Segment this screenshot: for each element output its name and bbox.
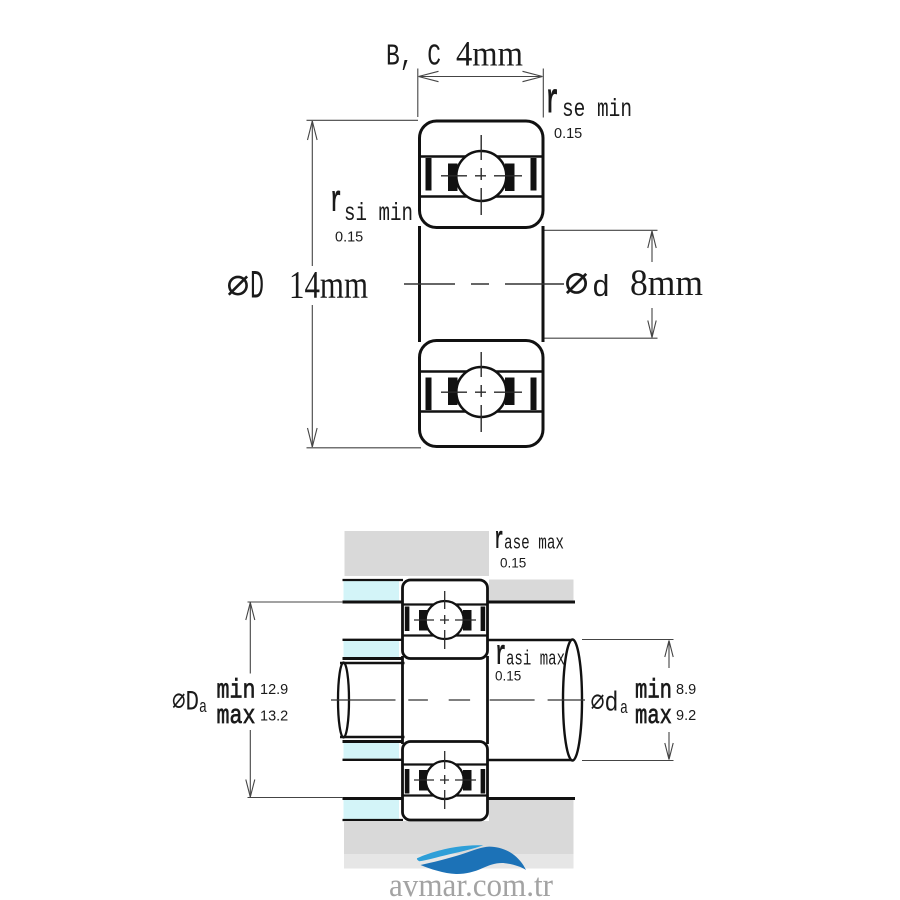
svg-text:ase max: ase max (504, 533, 564, 556)
svg-text:9.2: 9.2 (676, 708, 696, 724)
svg-text:0.15: 0.15 (495, 669, 521, 684)
svg-text:a: a (620, 699, 628, 719)
svg-text:0.15: 0.15 (554, 126, 582, 142)
svg-text:4mm: 4mm (456, 34, 523, 74)
svg-text:∅d: ∅d (591, 689, 619, 720)
svg-text:max: max (635, 702, 672, 732)
svg-text:d: d (592, 271, 610, 306)
svg-text:∅: ∅ (227, 267, 250, 310)
svg-text:r: r (546, 77, 559, 127)
svg-text:13.2: 13.2 (260, 709, 288, 725)
svg-text:r: r (495, 521, 504, 558)
svg-text:r: r (331, 180, 342, 223)
svg-text:se min: se min (562, 95, 632, 124)
svg-text:0.15: 0.15 (500, 556, 526, 571)
svg-text:0.15: 0.15 (335, 230, 363, 246)
svg-text:avmar.com.tr: avmar.com.tr (389, 868, 553, 900)
svg-text:si min: si min (344, 199, 413, 228)
svg-text:B, C: B, C (386, 40, 441, 75)
svg-text:∅: ∅ (565, 264, 589, 309)
svg-text:8.9: 8.9 (676, 682, 696, 698)
svg-text:12.9: 12.9 (260, 682, 288, 698)
svg-text:8mm: 8mm (630, 263, 703, 304)
svg-text:a: a (199, 698, 207, 718)
svg-text:14mm: 14mm (289, 264, 368, 307)
svg-text:∅D: ∅D (172, 688, 199, 719)
svg-text:D: D (250, 266, 264, 311)
svg-text:max: max (217, 702, 256, 732)
